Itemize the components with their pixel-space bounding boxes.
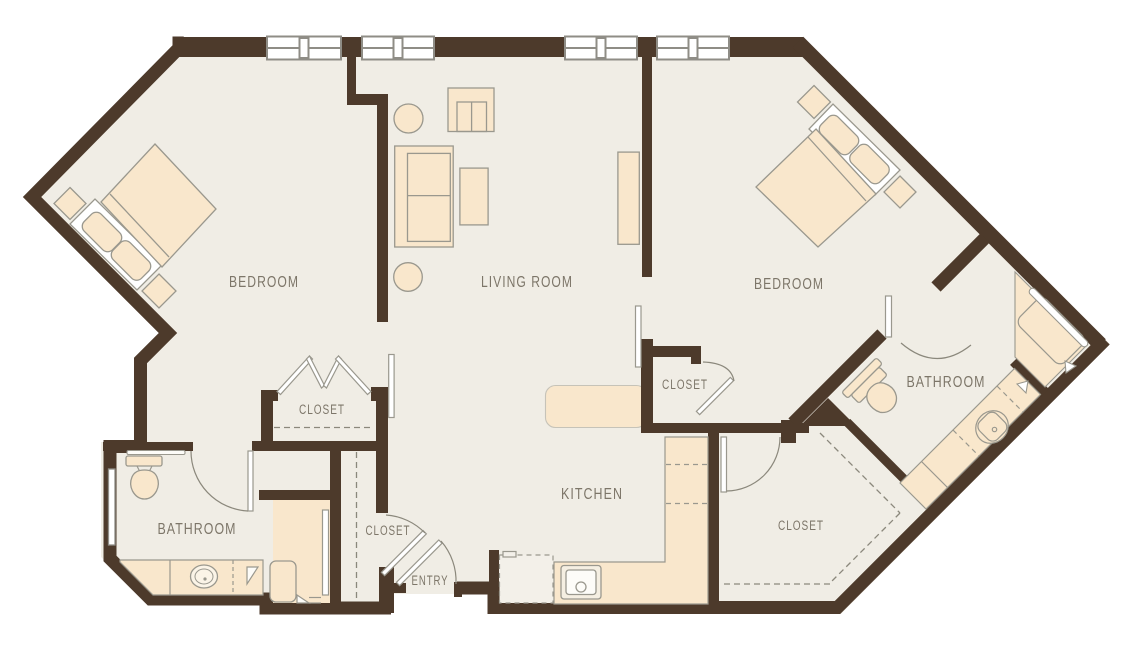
svg-text:CLOSET: CLOSET bbox=[662, 377, 708, 392]
svg-text:BATHROOM: BATHROOM bbox=[907, 374, 986, 391]
svg-text:BEDROOM: BEDROOM bbox=[229, 274, 299, 291]
svg-text:BEDROOM: BEDROOM bbox=[754, 276, 824, 293]
svg-text:BATHROOM: BATHROOM bbox=[158, 521, 237, 538]
svg-text:CLOSET: CLOSET bbox=[778, 518, 824, 533]
svg-text:CLOSET: CLOSET bbox=[366, 523, 411, 538]
svg-text:KITCHEN: KITCHEN bbox=[561, 486, 623, 503]
svg-text:ENTRY: ENTRY bbox=[412, 573, 449, 588]
svg-text:LIVING ROOM: LIVING ROOM bbox=[481, 274, 573, 291]
svg-text:CLOSET: CLOSET bbox=[299, 402, 345, 417]
